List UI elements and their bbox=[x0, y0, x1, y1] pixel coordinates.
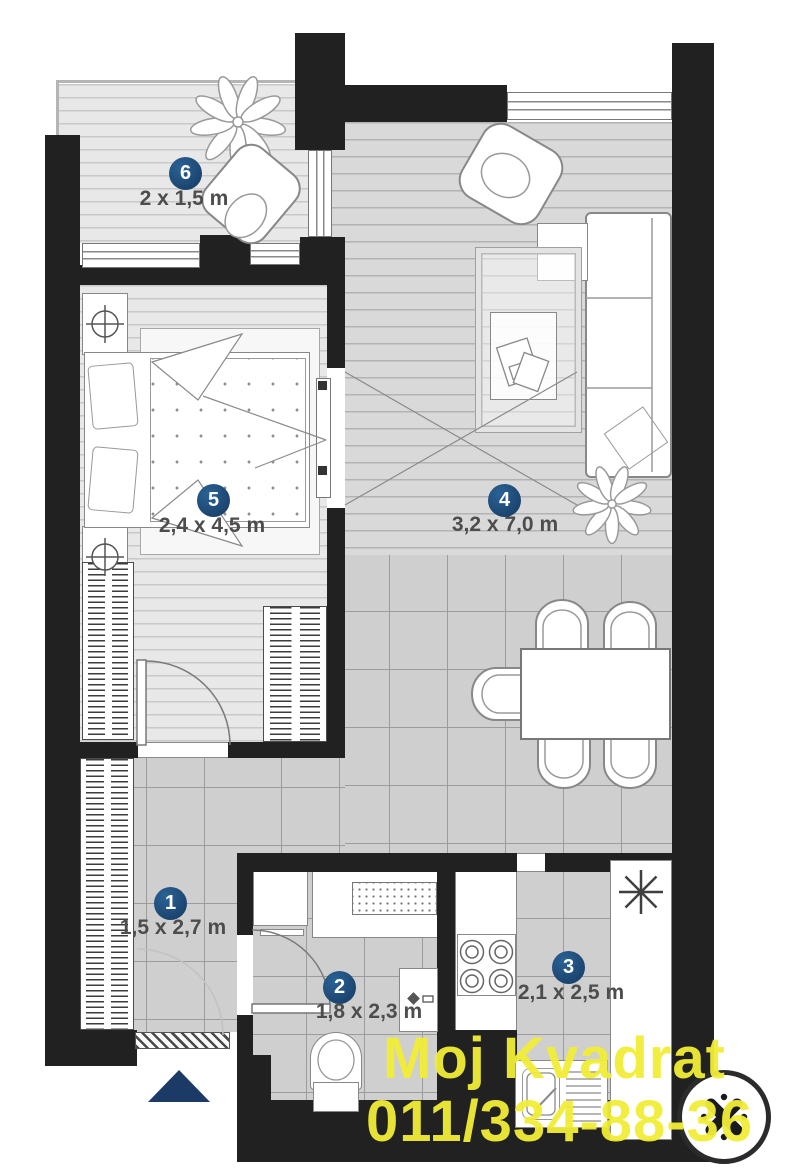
room-1-dims: 1,5 x 2,7 m bbox=[108, 917, 238, 939]
room-5-dims: 2,4 x 4,5 m bbox=[147, 515, 277, 537]
balcony-door bbox=[308, 150, 332, 237]
room-6-dims: 2 x 1,5 m bbox=[119, 188, 249, 210]
room-2-dims: 1,8 x 2,3 m bbox=[304, 1001, 434, 1023]
bedroom-door-opening bbox=[138, 742, 228, 758]
radiator bbox=[352, 882, 437, 915]
room-3-badge: 3 bbox=[552, 951, 585, 984]
pillow bbox=[87, 446, 138, 514]
room-5-badge: 5 bbox=[197, 484, 230, 517]
room-4-dims: 3,2 x 7,0 m bbox=[440, 514, 570, 536]
cabinet-handle bbox=[260, 929, 304, 936]
sliding-door-handle bbox=[318, 466, 327, 475]
wardrobe bbox=[263, 606, 327, 742]
floor-passage bbox=[237, 758, 345, 853]
terrace-railing-top bbox=[56, 80, 308, 83]
dining-table bbox=[520, 648, 671, 740]
window bbox=[250, 243, 300, 265]
window bbox=[507, 92, 672, 120]
wall-segment bbox=[295, 33, 345, 150]
wall-segment bbox=[343, 85, 507, 122]
room-6-badge: 6 bbox=[169, 157, 202, 190]
entrance-door-sill bbox=[135, 1032, 230, 1049]
room-3-dims: 2,1 x 2,5 m bbox=[506, 982, 636, 1004]
wall-segment bbox=[672, 43, 714, 1142]
wall-segment bbox=[237, 853, 672, 872]
wall-segment bbox=[237, 1055, 271, 1105]
nightstand bbox=[82, 293, 128, 355]
pillow bbox=[87, 362, 138, 430]
bathroom-cabinet bbox=[253, 868, 308, 926]
window bbox=[82, 243, 200, 268]
entrance-arrow-icon bbox=[148, 1070, 210, 1102]
wall-segment bbox=[45, 1030, 137, 1066]
wardrobe bbox=[80, 758, 134, 1030]
toilet-tank bbox=[313, 1082, 359, 1112]
sliding-door-leaf bbox=[316, 378, 331, 498]
sliding-door-handle bbox=[318, 381, 327, 390]
wall-segment bbox=[45, 265, 327, 285]
bathroom-door-opening bbox=[237, 935, 253, 1015]
kitchen-opening bbox=[517, 853, 545, 872]
wall-segment bbox=[200, 235, 250, 265]
watermark-phone: 011/334-88-36 bbox=[366, 1088, 753, 1155]
watermark-brand: Moj Kvadrat bbox=[383, 1025, 726, 1092]
coffee-table bbox=[490, 312, 557, 400]
wardrobe bbox=[82, 562, 134, 740]
